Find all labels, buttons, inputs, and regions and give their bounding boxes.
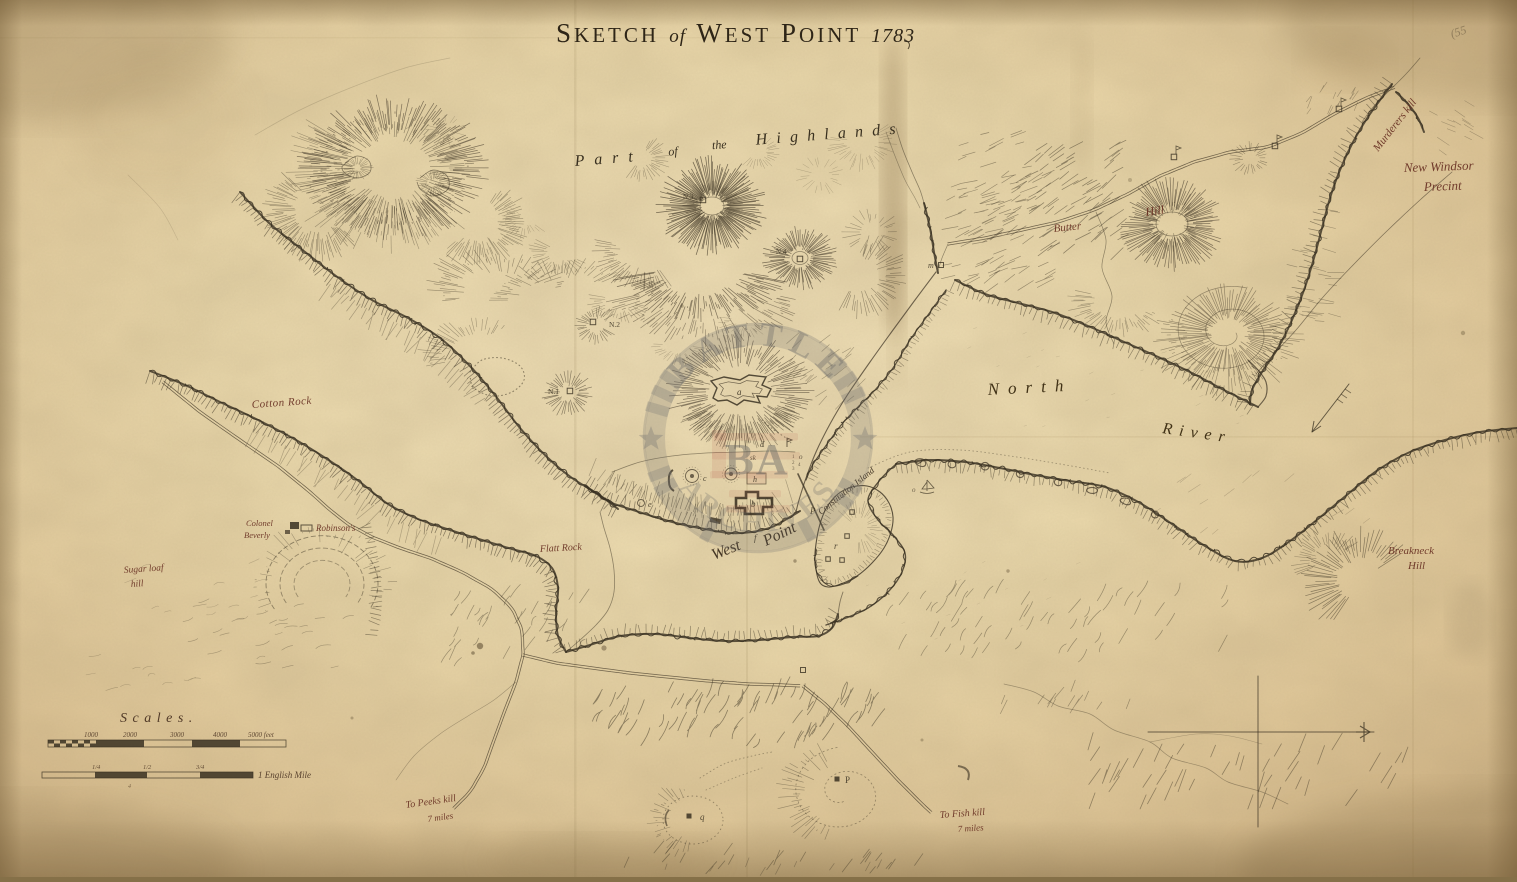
svg-text:r: r <box>834 541 838 551</box>
svg-text:Colonel: Colonel <box>246 518 274 528</box>
svg-text:Breakneck: Breakneck <box>1388 545 1435 557</box>
svg-text:o: o <box>912 486 916 494</box>
svg-text:SKETCH of WEST POINT 1783: SKETCH of WEST POINT 1783 <box>556 18 915 48</box>
svg-text:Beverly: Beverly <box>244 530 270 540</box>
svg-text:Precint: Precint <box>1423 178 1463 194</box>
svg-text:3/4: 3/4 <box>195 764 205 771</box>
svg-text:P: P <box>845 775 850 785</box>
svg-text:m: m <box>928 261 934 270</box>
svg-text:the: the <box>711 137 727 152</box>
svg-text:4: 4 <box>128 783 131 790</box>
svg-text:e: e <box>648 500 652 509</box>
svg-text:hill: hill <box>131 579 145 590</box>
svg-text:4000: 4000 <box>213 731 228 739</box>
svg-text:1 English Mile: 1 English Mile <box>258 770 311 780</box>
svg-text:New Windsor: New Windsor <box>1403 158 1475 175</box>
svg-text:Robinson's: Robinson's <box>315 523 356 533</box>
svg-text:1/2: 1/2 <box>143 764 152 771</box>
svg-text:N.3: N.3 <box>683 193 694 201</box>
svg-text:N.2: N.2 <box>609 320 620 329</box>
svg-text:q: q <box>700 812 705 822</box>
svg-text:S c a l e s .: S c a l e s . <box>120 711 193 726</box>
svg-text:2000: 2000 <box>123 731 138 739</box>
svg-text:7 miles: 7 miles <box>957 822 984 834</box>
svg-text:Flatt Rock: Flatt Rock <box>539 542 583 555</box>
svg-text:N.1: N.1 <box>548 387 559 396</box>
svg-text:BA: BA <box>724 435 789 484</box>
svg-text:N.4: N.4 <box>776 248 787 256</box>
svg-text:5000 feet: 5000 feet <box>248 731 275 739</box>
svg-text:1/4: 1/4 <box>92 764 101 771</box>
svg-text:1000: 1000 <box>84 731 99 739</box>
svg-text:a: a <box>737 387 742 397</box>
svg-text:3000: 3000 <box>169 731 185 739</box>
svg-text:Hill: Hill <box>1143 202 1165 219</box>
svg-text:Hill: Hill <box>1407 560 1425 572</box>
